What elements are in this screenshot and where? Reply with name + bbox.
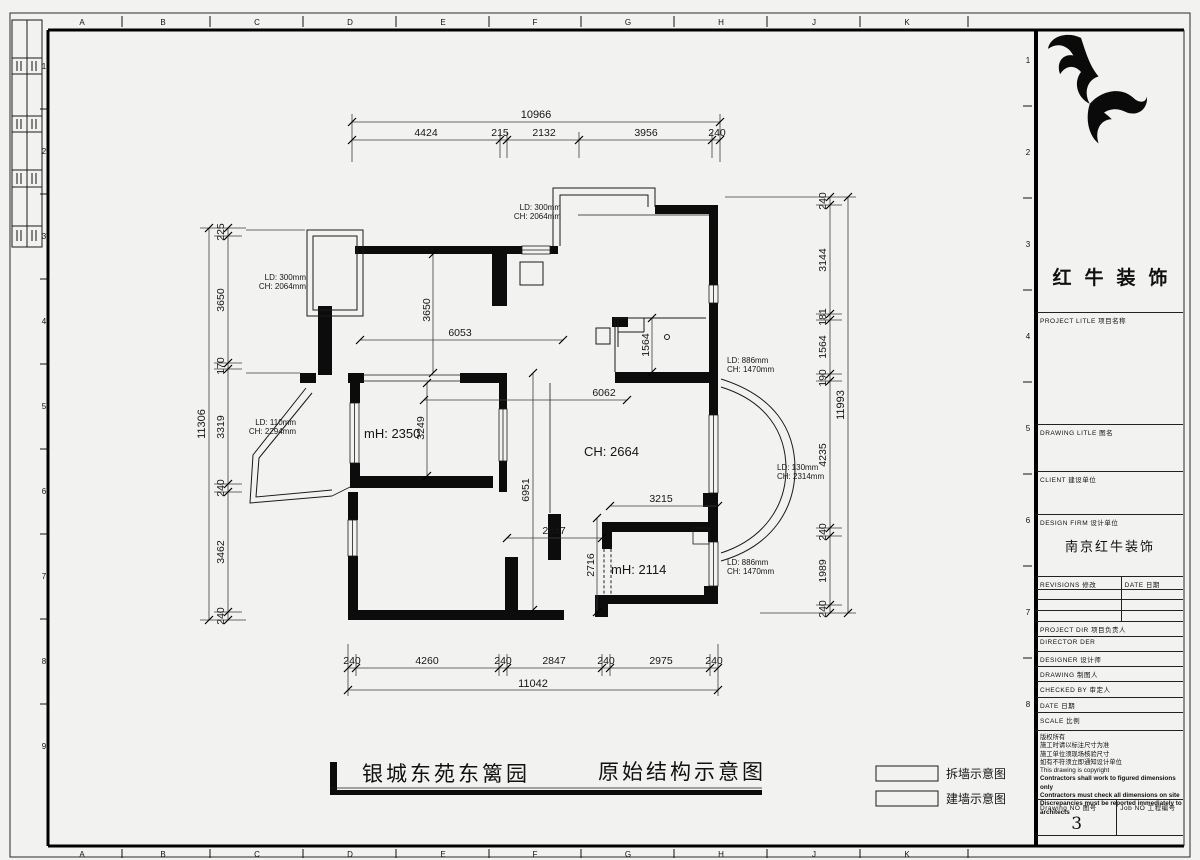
dim-label: 3215 [649, 493, 673, 505]
dim-label: 11993 [835, 390, 847, 420]
window-labels: LD: 300mm CH: 2064mm LD: 300mm CH: 2064m… [249, 203, 825, 576]
grid-ref-label: 5 [42, 402, 47, 411]
dim-label: 2975 [649, 655, 673, 667]
copyright-notes: 版权所有 施工时请以标注尺寸为准 施工单位须现场核验尺寸 如有不符须立即通知设计… [1037, 731, 1183, 800]
revisions-table: REVISIONS 修改 DATE 日期 [1037, 577, 1183, 622]
grid-ref-label: E [440, 18, 445, 27]
dim-label: 3650 [421, 298, 433, 322]
dim-label: 3144 [817, 248, 829, 272]
drawing-sheet: AABBCCDDEEFFGGHHJJKK12345678912345678 [0, 0, 1200, 860]
client-label: CLIENT 建设单位 [1037, 472, 1183, 484]
job-no-cell: Job NO 工程编号 [1117, 800, 1183, 835]
dim-label: 240 [343, 655, 361, 667]
grid-ref-label: A [79, 18, 85, 27]
title-block: 红牛装饰 PROJECT LITLE 项目名称 DRAWING LITLE 图名… [1037, 30, 1183, 846]
brand-name: 红牛装饰 [1039, 263, 1180, 290]
grid-ref-label: 5 [1026, 424, 1031, 433]
scale-row: SCALE 比例 [1037, 713, 1183, 731]
dim-label: 240 [817, 600, 829, 618]
copyright-line: 施工时请以标注尺寸为准 [1040, 742, 1183, 750]
revision-date-label: DATE 日期 [1122, 577, 1183, 589]
drawing-number-row: Drawing NO 图号 3 Job NO 工程编号 [1037, 800, 1183, 836]
dim-label: 240 [817, 192, 829, 210]
drawing-title: 原始结构示意图 [598, 761, 766, 784]
title-bracket [330, 762, 337, 790]
grid-ref-label: G [625, 18, 631, 27]
window-label: LD: 300mm [520, 203, 562, 212]
checked-label: CHECKED BY 审定人 [1037, 682, 1183, 694]
dim-label: 240 [708, 127, 726, 139]
grid-ref-label: 2 [42, 147, 47, 156]
grid-ref-label: C [254, 850, 260, 859]
copyright-line: Contractors shall work to figured dimens… [1040, 775, 1183, 792]
client-box: CLIENT 建设单位 [1037, 472, 1183, 515]
copyright-line: This drawing is copyright [1040, 767, 1183, 775]
drawing-no-value: 3 [1037, 814, 1116, 834]
dim-label: 240 [215, 607, 227, 625]
grid-ref-label: 1 [42, 62, 47, 71]
director-row: DIRECTOR DER [1037, 637, 1183, 652]
grid-ref-label: 8 [42, 657, 47, 666]
grid-ref-label: B [160, 18, 165, 27]
window-label: CH: 1470mm [727, 567, 774, 576]
grid-ref-label: H [718, 18, 724, 27]
date-row: DATE 日期 [1037, 698, 1183, 713]
grid-ref-label: 8 [1026, 700, 1031, 709]
legend-swatch-demolish [876, 766, 938, 781]
dim-label: 2847 [542, 655, 566, 667]
room-label: CH: 2664 [584, 444, 639, 459]
title-underline [330, 790, 762, 795]
grid-ref-label: K [904, 850, 910, 859]
designer-row: DESIGNER 设计师 [1037, 652, 1183, 667]
fixture [596, 328, 610, 344]
dim-label: 240 [494, 655, 512, 667]
dim-label: 225 [215, 223, 227, 241]
bathroom-outline [615, 318, 706, 372]
window-label: LD: 886mm [727, 356, 769, 365]
grid-ref-label: 1 [1026, 56, 1031, 65]
dim-label: 6951 [520, 478, 532, 502]
window [709, 285, 718, 303]
window-label: LD: 110mm [255, 418, 296, 427]
title-block-filler [1037, 836, 1183, 846]
project-name: 银城东苑东篱园 [362, 763, 530, 786]
window-label: CH: 2294mm [249, 427, 296, 436]
dim-label: 240 [705, 655, 723, 667]
grid-ref-label: 7 [42, 572, 47, 581]
drawing-row: DRAWING 制图人 [1037, 667, 1183, 682]
legend-swatch-build [876, 791, 938, 806]
dim-label: 11042 [518, 678, 548, 690]
dim-label: 240 [817, 523, 829, 541]
grid-ref-label: K [904, 18, 910, 27]
grid-ref-label: H [718, 850, 724, 859]
legend-label: 建墙示意图 [946, 791, 1006, 806]
room-labels: mH: 2350 CH: 2664 mH: 2114 [364, 426, 666, 577]
dim-label: 181 [817, 308, 829, 326]
design-firm-value: 南京红牛装饰 [1037, 536, 1183, 555]
red-bull-logo-icon [1037, 30, 1147, 180]
window-label: CH: 2064mm [514, 212, 561, 221]
dim-label: 170 [215, 357, 227, 375]
door-opening-dashed [604, 549, 611, 594]
drain-symbol [665, 335, 670, 340]
scale-label: SCALE 比例 [1037, 713, 1183, 725]
grid-ref-label: F [533, 18, 538, 27]
dim-label: 4235 [817, 443, 829, 467]
revision-row-cell [1122, 590, 1183, 600]
dim-label: 4260 [415, 655, 439, 667]
copyright-line: 如有不符须立即通知设计单位 [1040, 759, 1183, 767]
window-label: CH: 1470mm [727, 365, 774, 374]
checked-row: CHECKED BY 审定人 [1037, 682, 1183, 698]
date-label: DATE 日期 [1037, 698, 1183, 710]
dim-label: 2132 [532, 127, 556, 139]
dim-label: 6053 [448, 327, 472, 339]
revision-row-cell [1037, 590, 1122, 600]
grid-ref-label: E [440, 850, 445, 859]
grid-ref-label: C [254, 18, 260, 27]
dim-label: 240 [215, 479, 227, 497]
window-label: CH: 2064mm [259, 282, 306, 291]
grid-ref-label: 9 [42, 742, 47, 751]
room-label: mH: 2114 [611, 562, 666, 577]
bay-window-left-slanted [250, 388, 332, 503]
room-label: mH: 2350 [364, 426, 420, 441]
drawing-label: DRAWING 制图人 [1037, 667, 1183, 679]
revision-strip [12, 20, 42, 247]
project-title-label: PROJECT LITLE 项目名称 [1037, 313, 1183, 325]
window [348, 520, 357, 556]
grid-ref-label: J [812, 18, 816, 27]
director-label: DIRECTOR DER [1037, 637, 1183, 646]
drawing-title-label: DRAWING LITLE 图名 [1037, 425, 1183, 437]
logo-section: 红牛装饰 [1037, 30, 1183, 313]
dim-label: 4424 [414, 127, 438, 139]
design-firm-label: DESIGN FIRM 设计单位 [1037, 515, 1183, 527]
dim-label: 11306 [196, 409, 208, 439]
dim-label: 3956 [634, 127, 658, 139]
copyright-line: 施工单位须现场核验尺寸 [1040, 751, 1183, 759]
bay-window-top-center [553, 188, 655, 246]
bay-window-top-left [307, 230, 363, 316]
revision-row-cell [1037, 600, 1122, 610]
revision-row-cell [1037, 611, 1122, 621]
project-dir-label: PROJECT DIR 项目负责人 [1037, 622, 1183, 634]
grid-references: AABBCCDDEEFFGGHHJJKK12345678912345678 [40, 16, 1032, 859]
window [350, 403, 359, 463]
window-label: LD: 886mm [727, 558, 769, 567]
dim-label: 2716 [585, 553, 597, 577]
revisions-label: REVISIONS 修改 [1037, 577, 1121, 589]
legend-label: 拆墙示意图 [946, 766, 1006, 781]
drawing-no-label: Drawing NO 图号 [1037, 800, 1116, 812]
dim-label: 1564 [817, 335, 829, 359]
grid-ref-label: B [160, 850, 165, 859]
revision-row-cell [1122, 611, 1183, 621]
dim-label: 2847 [542, 525, 566, 537]
revision-row-cell [1122, 600, 1183, 610]
grid-ref-label: 3 [1026, 240, 1031, 249]
job-no-label: Job NO 工程编号 [1117, 800, 1183, 812]
grid-ref-label: 6 [42, 487, 47, 496]
dim-label: 1989 [817, 559, 829, 583]
grid-ref-label: 4 [42, 317, 47, 326]
floor-plan-canvas: AABBCCDDEEFFGGHHJJKK12345678912345678 [0, 0, 1200, 860]
grid-ref-label: 2 [1026, 148, 1031, 157]
drawing-title-box: DRAWING LITLE 图名 [1037, 425, 1183, 472]
flue [520, 262, 543, 285]
dim-label: 3319 [215, 415, 227, 439]
dim-label: 10966 [521, 109, 552, 121]
dim-label: 190 [817, 369, 829, 387]
footer-titles: 银城东苑东篱园 原始结构示意图 [330, 761, 766, 795]
grid-ref-label: 7 [1026, 608, 1031, 617]
window-label: LD: 300mm [265, 273, 307, 282]
grid-ref-label: F [533, 850, 538, 859]
wall-opening [362, 375, 460, 381]
dim-label: 3650 [215, 288, 227, 312]
window [522, 246, 550, 254]
drawing-no-cell: Drawing NO 图号 3 [1037, 800, 1117, 835]
grid-ref-label: A [79, 850, 85, 859]
grid-ref-label: J [812, 850, 816, 859]
dim-label: 215 [491, 127, 509, 139]
grid-ref-label: D [347, 850, 353, 859]
dim-label: 1564 [640, 333, 652, 357]
grid-ref-label: 6 [1026, 516, 1031, 525]
dim-label: 3462 [215, 540, 227, 564]
project-dir-row: PROJECT DIR 项目负责人 [1037, 622, 1183, 637]
window [709, 415, 718, 493]
legend: 拆墙示意图 建墙示意图 [876, 766, 1006, 806]
design-firm-box: DESIGN FIRM 设计单位 南京红牛装饰 [1037, 515, 1183, 577]
window-label: LD: 130mm [777, 463, 819, 472]
grid-ref-label: D [347, 18, 353, 27]
grid-ref-label: 3 [42, 232, 47, 241]
grid-ref-label: 4 [1026, 332, 1031, 341]
dim-label: 6062 [592, 387, 616, 399]
dim-label: 240 [597, 655, 615, 667]
project-title-box: PROJECT LITLE 项目名称 [1037, 313, 1183, 425]
grid-ref-label: G [625, 850, 631, 859]
window [499, 409, 507, 461]
window [709, 542, 718, 586]
window-label: CH: 2314mm [777, 472, 824, 481]
designer-label: DESIGNER 设计师 [1037, 652, 1183, 664]
